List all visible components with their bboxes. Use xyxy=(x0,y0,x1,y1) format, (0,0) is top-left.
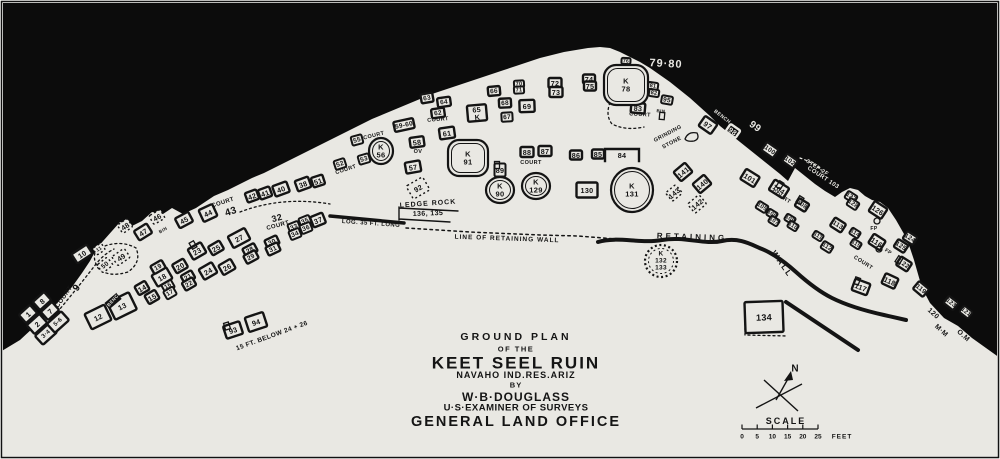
annotation-79-80: 79·80 xyxy=(649,57,683,71)
room-69: 69 xyxy=(519,100,534,113)
room-51: 51 xyxy=(311,174,326,187)
room-number: 95 xyxy=(662,96,671,104)
kiva-K-90: K90 xyxy=(486,177,514,203)
scale-tick-label-2: 10 xyxy=(769,434,777,441)
room-number: 130 xyxy=(581,186,594,195)
room-number: 71 xyxy=(516,87,523,93)
compass-north-label: N xyxy=(791,364,798,375)
title-line-6: U·S·EXAMINER OF SURVEYS xyxy=(444,403,589,414)
room-73: 73 xyxy=(550,87,563,97)
room-number: 73 xyxy=(552,88,561,97)
annotation-fp: FP xyxy=(870,226,877,232)
room-number: 84 xyxy=(618,151,627,160)
room-61: 61 xyxy=(439,127,455,140)
ground-plan-map: Ground Plan of the Keet Seel Ruin 18273·… xyxy=(0,0,1000,459)
room-76: 76 xyxy=(621,58,630,65)
scale-tick-label-3: 15 xyxy=(784,434,792,441)
room-71: 71 xyxy=(514,86,524,94)
annotation-court: COURT xyxy=(520,160,542,166)
room-75: 75 xyxy=(584,82,596,92)
kiva-K-56: K56 xyxy=(369,138,393,164)
room-number: 85 xyxy=(594,150,603,159)
room-number: 134 xyxy=(756,312,772,323)
room-number: 68 xyxy=(501,100,509,107)
room-130: 130 xyxy=(577,183,598,198)
title-line-7: GENERAL LAND OFFICE xyxy=(411,414,621,430)
annotation-bin: BIN xyxy=(656,108,665,114)
room-87: 87 xyxy=(539,146,552,156)
room-number: 63 xyxy=(423,94,432,102)
room-66: 66 xyxy=(488,86,501,96)
annotation-court: COURT xyxy=(629,111,651,118)
room-number: 86 xyxy=(572,151,581,160)
scale-tick-label-5: 25 xyxy=(814,434,822,441)
room-58: 58 xyxy=(409,136,424,148)
room-134: 134 xyxy=(744,301,783,333)
kiva-K-91: K91 xyxy=(448,140,488,176)
room-number: 82 xyxy=(650,90,657,97)
room-number: 64 xyxy=(440,98,449,106)
room-number: 61 xyxy=(442,128,452,138)
annotation-136-135: 136, 135 xyxy=(413,210,444,218)
room-65: 65K xyxy=(467,104,487,122)
title-line-3: NAVAHO IND.RES.ARIZ xyxy=(456,370,575,380)
room-64: 64 xyxy=(437,97,451,108)
room-number: 87 xyxy=(541,147,550,156)
room-number: 57 xyxy=(408,162,418,172)
room-82: 82 xyxy=(649,89,660,97)
room-number: 88 xyxy=(523,148,532,157)
title-line-4: BY xyxy=(510,381,522,390)
kiva-K-129: K129 xyxy=(522,173,550,199)
scale-unit-label: FEET xyxy=(832,434,853,441)
kiva-K-78: K78 xyxy=(604,65,648,105)
room-85: 85 xyxy=(592,150,604,160)
room-number: 69 xyxy=(523,102,532,111)
room-number: 76 xyxy=(623,58,629,64)
room-86: 86 xyxy=(570,151,582,161)
room-63: 63 xyxy=(420,93,433,104)
keet-seel-ground-plan-scan: Ground Plan of the Keet Seel Ruin 18273·… xyxy=(0,0,1000,459)
room-67: 67 xyxy=(501,112,512,122)
room-number: 66 xyxy=(490,88,498,96)
room-number: 67 xyxy=(503,114,511,121)
title-line-0: GROUND PLAN xyxy=(460,331,571,343)
room-95: 95 xyxy=(661,95,673,105)
scale-tick-label-0: 0 xyxy=(740,434,744,441)
scale-tick-label-1: 5 xyxy=(755,434,759,441)
room-number: 75 xyxy=(586,82,595,91)
room-88: 88 xyxy=(521,147,534,157)
kiva-K-131: K131 xyxy=(611,168,653,212)
room-57: 57 xyxy=(405,160,422,173)
room-68: 68 xyxy=(499,98,511,108)
title-line-1: OF THE xyxy=(498,345,535,354)
room-42: 42 xyxy=(245,189,260,203)
annotation-ov: OV xyxy=(414,149,423,155)
kiva-K-132-133: K132133 xyxy=(645,245,677,277)
room-number: 58 xyxy=(412,137,422,147)
scale-tick-label-4: 20 xyxy=(799,434,807,441)
room-55: 55 xyxy=(351,134,364,146)
